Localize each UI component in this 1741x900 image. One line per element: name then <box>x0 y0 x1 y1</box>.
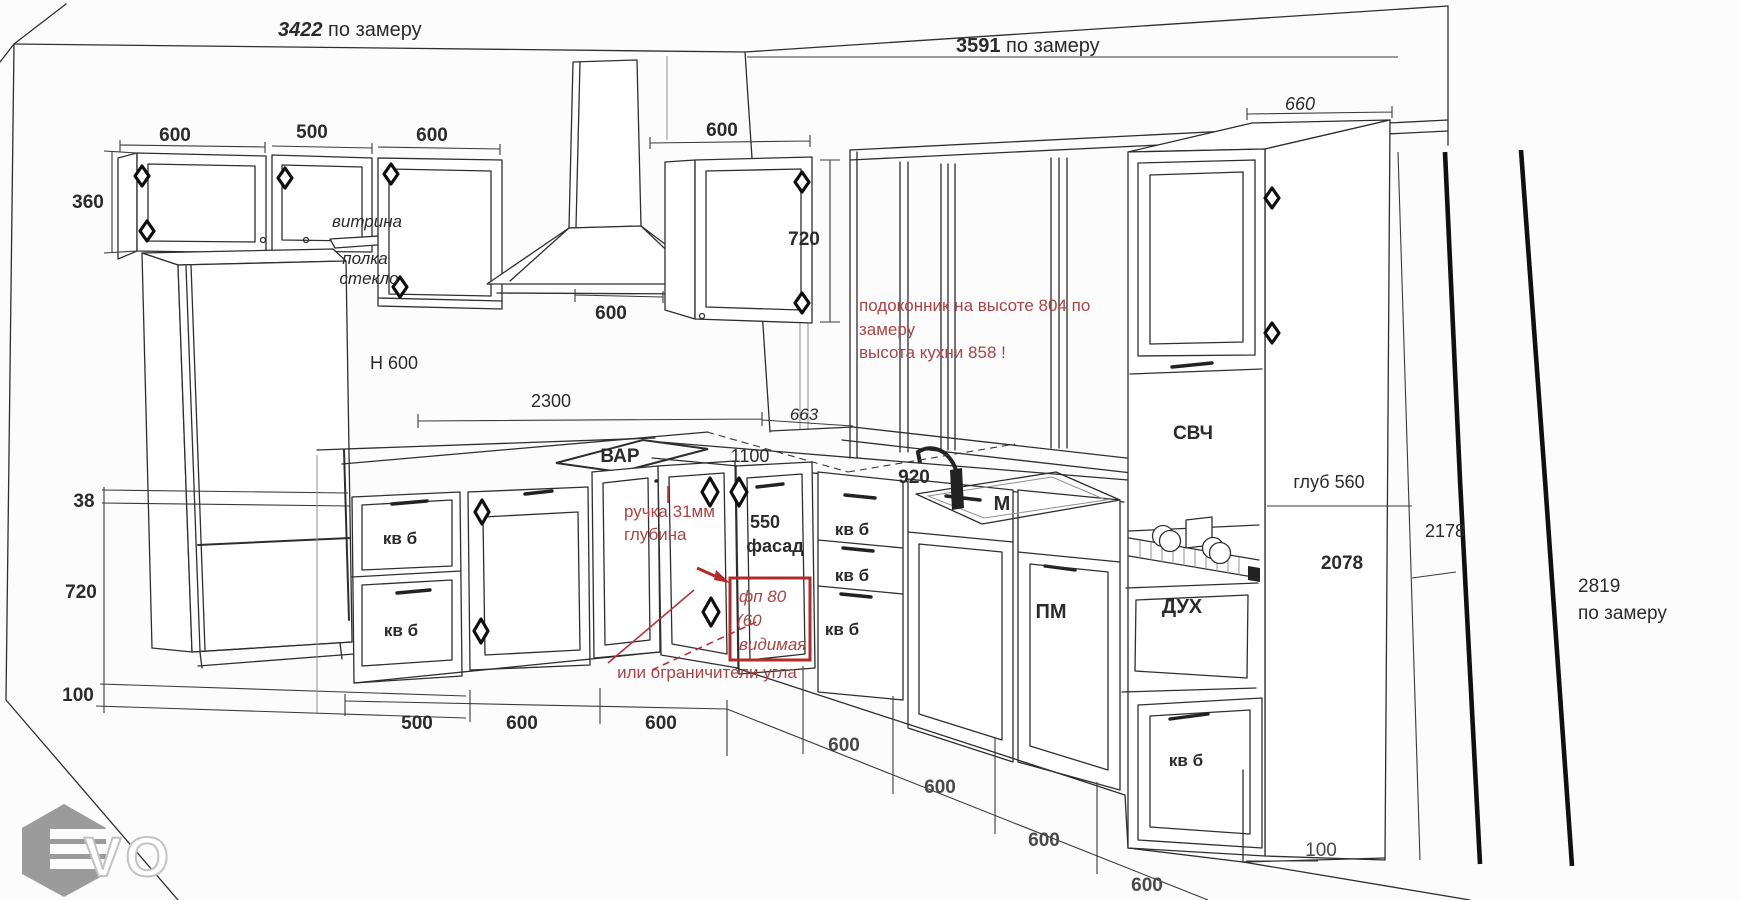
dim-left-720: 720 <box>65 582 97 603</box>
label-kvb-4: кв б <box>835 566 869 585</box>
note-handle-line1: ручка 31мм <box>624 502 715 521</box>
fridge <box>142 249 354 668</box>
drawer-stack-right <box>818 472 903 700</box>
wall-cabinet-1-side <box>118 153 137 259</box>
dim-2078: 2078 <box>1321 553 1363 574</box>
label-kvb-6: кв б <box>1169 751 1203 770</box>
label-kvb-3: кв б <box>835 520 869 539</box>
label-vitrina: витрина <box>332 212 402 231</box>
note-fp-line2: (60 <box>737 611 762 630</box>
label-h600: Н 600 <box>370 353 418 373</box>
dim-38: 38 <box>73 491 94 512</box>
dim-wall-left: 3422 по замеру <box>278 19 422 41</box>
measure-line-2178 <box>1445 152 1480 864</box>
label-kvb-2: кв б <box>384 621 418 640</box>
dim-diag-600b: 600 <box>924 777 956 798</box>
dim-2819-suffix: по замеру <box>1578 603 1667 624</box>
dim-cab3-600: 600 <box>416 125 448 146</box>
dim-run-600b: 600 <box>645 713 677 734</box>
dim-diag-600a: 600 <box>828 735 860 756</box>
dim-diag-600d: 600 <box>1131 875 1163 896</box>
dim-1100: 1100 <box>731 446 770 466</box>
label-svch: СВЧ <box>1173 423 1213 444</box>
dim-663: 663 <box>790 405 819 424</box>
dim-glub-560: глуб 560 <box>1293 472 1364 492</box>
label-cooktop-var: ВАР <box>600 446 639 467</box>
label-dukh: ДУХ <box>1162 596 1203 618</box>
dim-360: 360 <box>72 192 104 213</box>
label-fasad: фасад <box>746 536 804 556</box>
dim-run-500: 500 <box>401 713 433 734</box>
dim-2178: 2178 <box>1425 521 1465 541</box>
dim-left-100: 100 <box>62 685 94 706</box>
dim-550: 550 <box>750 512 780 532</box>
note-handle-line2: глубина <box>624 525 687 544</box>
dim-diag-600c: 600 <box>1028 830 1060 851</box>
dim-2300: 2300 <box>531 391 571 411</box>
evo-logo-text: VO <box>84 825 173 888</box>
base-run-left <box>317 432 708 683</box>
dim-920: 920 <box>898 467 930 488</box>
wall-cabinet-1 <box>137 153 266 253</box>
dim-wall-right: 3591 по замеру <box>956 35 1100 57</box>
measure-line-2819 <box>1521 150 1572 866</box>
label-pm: ПМ <box>1035 601 1066 623</box>
note-sill-line3: высота кухни 858 ! <box>859 343 1006 362</box>
dim-wall-720: 720 <box>788 229 820 250</box>
dim-corner-wall-600: 600 <box>706 120 738 141</box>
note-corner-stoppers: или ограничители угла <box>617 663 797 682</box>
label-polka: полка <box>342 249 388 268</box>
note-fp-line1: фп 80 <box>739 587 787 606</box>
kitchen-elevation-drawing: 3422 по замеру 3591 по замеру 660 600 50… <box>0 0 1741 900</box>
faucet-body <box>950 468 964 510</box>
evo-logo: VO <box>22 804 173 897</box>
note-fp-line3: видимая <box>739 635 806 654</box>
dim-right-100: 100 <box>1305 840 1337 861</box>
dim-hood-600: 600 <box>595 303 627 324</box>
note-sill-line2: замеру <box>859 320 916 339</box>
label-sink-m: М <box>994 493 1011 515</box>
corner-base-cabinet <box>658 461 738 668</box>
dim-cab2-500: 500 <box>296 122 328 143</box>
label-steklo: стекло <box>339 269 398 288</box>
label-kvb-1: кв б <box>383 529 417 548</box>
note-sill-line1: подоконник на высоте 804 по <box>859 296 1090 315</box>
dim-660: 660 <box>1285 94 1315 114</box>
drawer-stack-left <box>352 492 462 683</box>
dishwasher <box>1018 490 1120 790</box>
label-kvb-5: кв б <box>825 620 859 639</box>
kitchen-drawing-page: 3422 по замеру 3591 по замеру 660 600 50… <box>0 0 1741 900</box>
dim-2819: 2819 <box>1578 576 1620 597</box>
dim-run-600a: 600 <box>506 713 538 734</box>
dim-cab1-600: 600 <box>159 125 191 146</box>
